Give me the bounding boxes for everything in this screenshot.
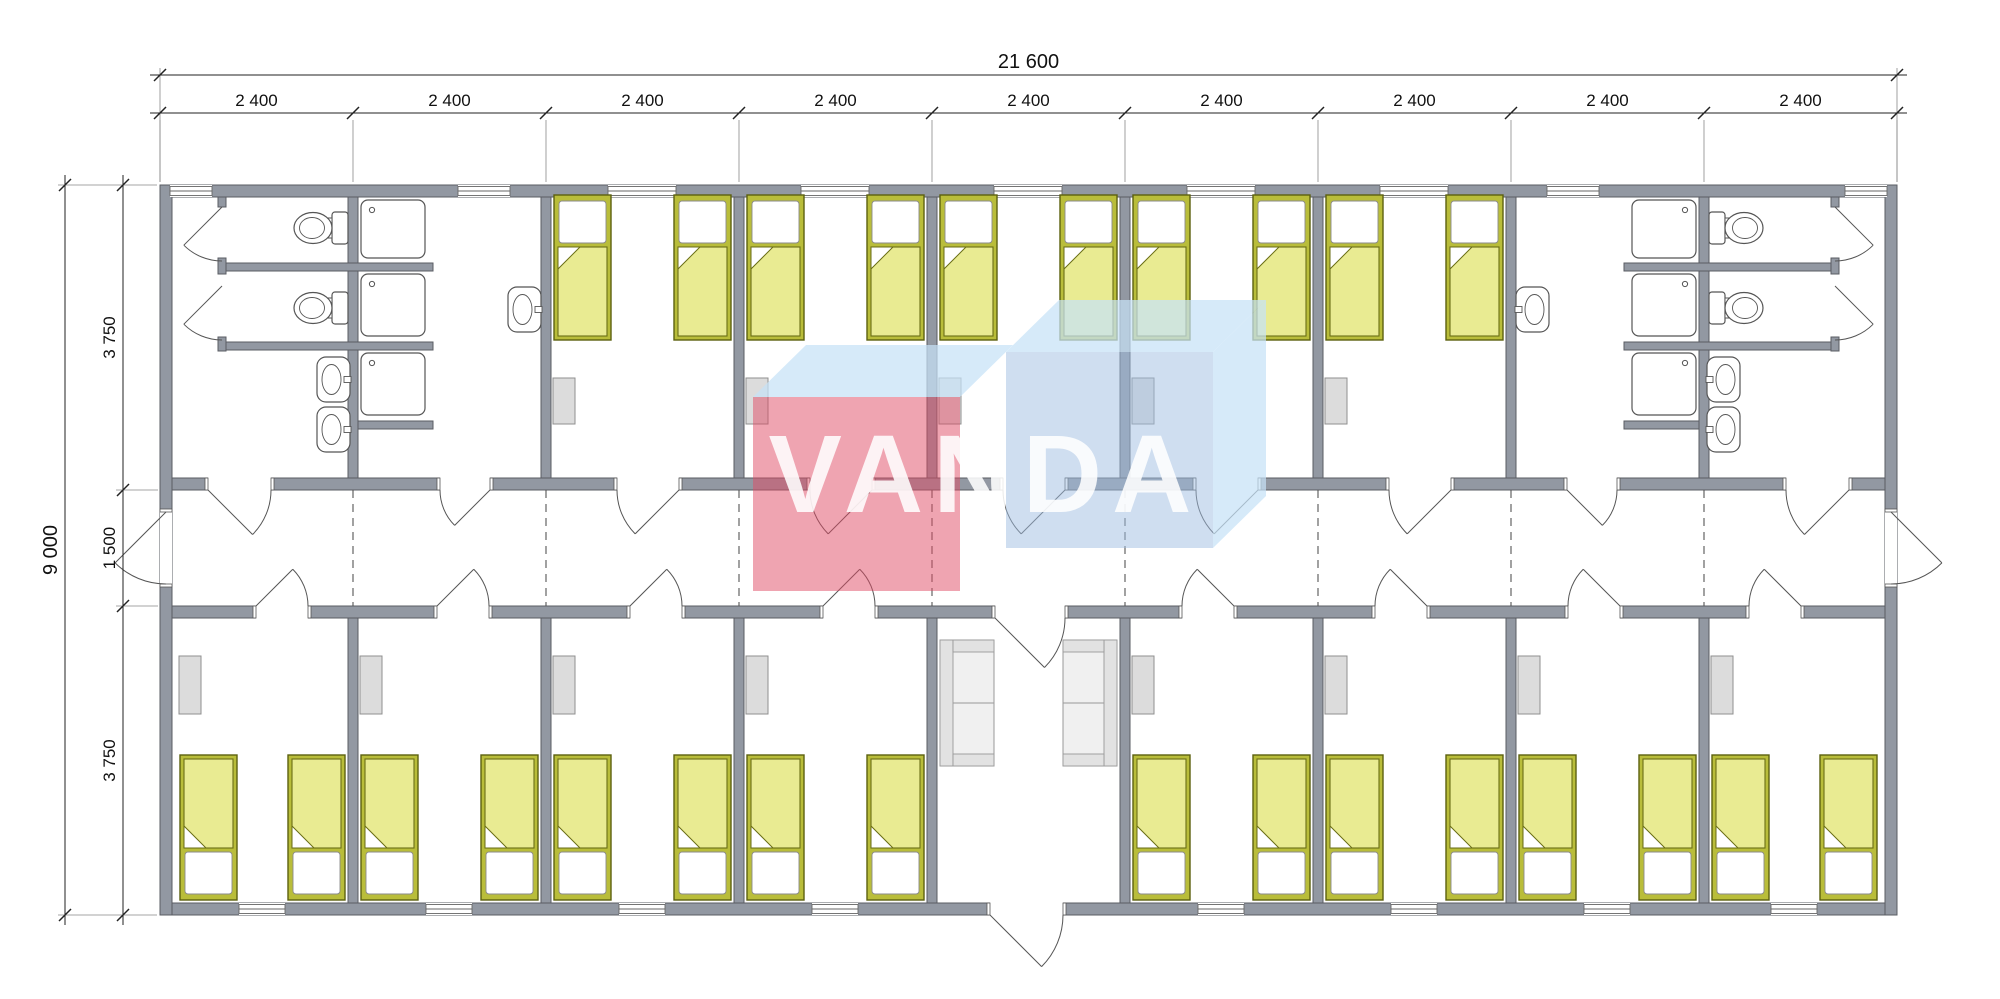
dimension-label-module: 2 400: [1779, 91, 1822, 110]
floor-plan-svg: 21 6002 4002 4002 4002 4002 4002 4002 40…: [0, 0, 2000, 999]
door-opening: [990, 903, 1063, 916]
door-jamb: [1801, 606, 1804, 618]
door-swing-arc: [293, 569, 308, 606]
door-opening: [617, 478, 679, 491]
door-jamb: [308, 606, 311, 618]
sofa-armrest: [1063, 640, 1104, 652]
dimension-label-module: 2 400: [814, 91, 857, 110]
partition-wall: [1699, 618, 1709, 903]
partition-wall: [541, 618, 551, 903]
door-jamb: [1179, 606, 1182, 618]
dimension-label-module: 2 400: [235, 91, 278, 110]
door-swing-arc: [1568, 569, 1583, 606]
door-leaf: [1583, 569, 1620, 606]
partition-wall: [541, 197, 551, 478]
partition-wall: [927, 618, 937, 903]
bed-pillow: [293, 852, 340, 894]
shower-tray: [1632, 274, 1696, 336]
door-jamb: [489, 606, 492, 618]
partition-wall: [734, 618, 744, 903]
partition-wall: [1313, 197, 1323, 478]
stall-door-arc: [1835, 324, 1873, 340]
door-jamb: [1620, 606, 1623, 618]
dimension-label-vertical: 3 750: [100, 316, 119, 359]
door-opening: [160, 512, 172, 584]
sofa-armrest: [953, 640, 994, 652]
door-leaf: [1197, 569, 1234, 606]
stub-wall: [218, 258, 226, 274]
stub-wall: [1831, 197, 1839, 207]
toilet-cistern: [332, 292, 348, 324]
watermark-text: VANDA: [769, 413, 1202, 536]
door-jamb: [1617, 478, 1620, 490]
door-jamb: [614, 478, 617, 490]
bed-pillow: [559, 201, 606, 243]
door-jamb: [992, 606, 995, 618]
bed-pillow: [872, 852, 919, 894]
bed-pillow: [486, 852, 533, 894]
stub-wall: [218, 337, 226, 351]
basin-tap: [1706, 377, 1713, 383]
door-jamb: [1565, 606, 1568, 618]
door-jamb: [1885, 584, 1897, 587]
dimension-label-module: 2 400: [621, 91, 664, 110]
door-swing-arc: [667, 569, 682, 606]
stub-wall: [1831, 337, 1839, 351]
wardrobe: [179, 656, 201, 714]
door-opening: [1389, 478, 1451, 491]
stall-door-arc: [1835, 245, 1873, 261]
wardrobe: [553, 656, 575, 714]
door-swing-arc: [1389, 490, 1407, 534]
dimension-label-module: 2 400: [1586, 91, 1629, 110]
door-jamb: [434, 606, 437, 618]
door-swing-arc: [1044, 618, 1065, 667]
door-swing-arc: [253, 490, 271, 535]
door-leaf: [1567, 490, 1602, 525]
bed-pillow: [1138, 852, 1185, 894]
dimension-label-module: 2 400: [1393, 91, 1436, 110]
door-swing-arc: [1891, 563, 1942, 584]
watermark-cube-top: [753, 345, 1013, 397]
bed-pillow: [945, 201, 992, 243]
dimension-label-module: 2 400: [1200, 91, 1243, 110]
door-jamb: [253, 606, 256, 618]
door-opening: [1885, 512, 1897, 584]
stall-door-leaf: [184, 207, 222, 245]
bed-pillow: [1258, 852, 1305, 894]
door-leaf: [990, 915, 1042, 967]
partition-wall: [1506, 197, 1516, 478]
door-jamb: [1885, 509, 1897, 512]
sofa-back: [1104, 640, 1117, 766]
door-opening: [1786, 478, 1849, 491]
door-leaf: [437, 569, 474, 606]
door-leaf: [995, 618, 1044, 667]
door-jamb: [1849, 478, 1852, 490]
wardrobe: [1518, 656, 1540, 714]
toilet-cistern: [332, 212, 348, 244]
bed-pillow: [185, 852, 232, 894]
door-leaf: [1390, 569, 1427, 606]
partition-wall: [1120, 618, 1130, 903]
door-opening: [630, 606, 682, 619]
door-opening: [1375, 606, 1427, 619]
door-jamb: [1063, 903, 1066, 915]
door-jamb: [1564, 478, 1567, 490]
sofa-back: [940, 640, 953, 766]
door-jamb: [271, 478, 274, 490]
partition-wall: [348, 618, 358, 903]
stall-door-leaf: [184, 286, 222, 324]
partition-wall: [1313, 618, 1323, 903]
bed-pillow: [872, 201, 919, 243]
door-leaf: [1407, 490, 1451, 534]
dimension-label-module: 2 400: [428, 91, 471, 110]
shower-tray: [1632, 200, 1696, 258]
dimension-label-total-width: 21 600: [998, 51, 1059, 73]
door-jamb: [627, 606, 630, 618]
stub-wall: [358, 421, 433, 429]
bed-pillow: [1331, 852, 1378, 894]
door-jamb: [1372, 606, 1375, 618]
door-leaf: [256, 569, 293, 606]
door-jamb: [679, 478, 682, 490]
door-jamb: [820, 606, 823, 618]
bed-pillow: [679, 852, 726, 894]
door-opening: [995, 606, 1065, 619]
shower-tray: [361, 274, 425, 336]
bed-pillow: [752, 201, 799, 243]
bed-pillow: [679, 201, 726, 243]
dimension-label-total-height: 9 000: [40, 525, 62, 575]
bed-pillow: [1331, 201, 1378, 243]
door-opening: [1568, 606, 1620, 619]
dimension-label-vertical: 1 500: [100, 527, 119, 570]
bed-pillow: [1451, 852, 1498, 894]
door-jamb: [875, 606, 878, 618]
door-opening: [437, 606, 489, 619]
stall-door-arc: [184, 324, 222, 340]
shower-tray: [1632, 353, 1696, 415]
toilet-cistern: [1709, 292, 1725, 324]
door-leaf: [1891, 512, 1942, 563]
door-leaf: [1764, 569, 1801, 606]
door-jamb: [1451, 478, 1454, 490]
bed-pillow: [559, 852, 606, 894]
door-jamb: [1746, 606, 1749, 618]
wardrobe: [746, 656, 768, 714]
wardrobe: [1711, 656, 1733, 714]
bed-pillow: [1258, 201, 1305, 243]
door-jamb: [205, 478, 208, 490]
bed-pillow: [366, 852, 413, 894]
stall-door-arc: [184, 245, 222, 261]
shower-tray: [361, 353, 425, 415]
door-jamb: [987, 903, 990, 915]
door-leaf: [455, 490, 490, 525]
bed-pillow: [1065, 201, 1112, 243]
door-opening: [256, 606, 308, 619]
door-swing-arc: [440, 490, 455, 525]
bed-pillow: [1451, 201, 1498, 243]
door-swing-arc: [1375, 569, 1390, 606]
wardrobe: [1325, 656, 1347, 714]
door-swing-arc: [474, 569, 489, 606]
partition-wall: [734, 197, 744, 478]
stub-wall: [222, 342, 433, 350]
floor-plan-page: 21 6002 4002 4002 4002 4002 4002 4002 40…: [0, 0, 2000, 999]
door-jamb: [490, 478, 493, 490]
door-leaf: [635, 490, 679, 534]
stub-wall: [1831, 258, 1839, 274]
wardrobe: [360, 656, 382, 714]
door-jamb: [1234, 606, 1237, 618]
basin-tap: [344, 427, 351, 433]
bed-pillow: [1138, 201, 1185, 243]
door-leaf: [630, 569, 667, 606]
door-jamb: [437, 478, 440, 490]
basin-tap: [1515, 307, 1522, 313]
door-jamb: [1783, 478, 1786, 490]
door-swing-arc: [1749, 569, 1764, 606]
bed-pillow: [1524, 852, 1571, 894]
basin-tap: [1706, 427, 1713, 433]
stub-wall: [1624, 263, 1835, 271]
door-leaf: [1804, 490, 1849, 535]
dimension-label-module: 2 400: [1007, 91, 1050, 110]
door-jamb: [160, 584, 172, 587]
door-opening: [1567, 478, 1617, 491]
sofa-armrest: [1063, 754, 1104, 766]
partition-wall: [1506, 618, 1516, 903]
bed-pillow: [1717, 852, 1764, 894]
bed-pillow: [1825, 852, 1872, 894]
basin-tap: [535, 307, 542, 313]
stall-door-leaf: [1835, 286, 1873, 324]
wardrobe: [1132, 656, 1154, 714]
stub-wall: [1624, 342, 1835, 350]
door-jamb: [160, 509, 172, 512]
door-swing-arc: [1602, 490, 1617, 525]
door-jamb: [682, 606, 685, 618]
toilet-cistern: [1709, 212, 1725, 244]
door-swing-arc: [1042, 915, 1063, 967]
door-opening: [1182, 606, 1234, 619]
door-opening: [440, 478, 490, 491]
door-jamb: [1065, 606, 1068, 618]
door-jamb: [1427, 606, 1430, 618]
wardrobe: [1325, 378, 1347, 424]
door-jamb: [1386, 478, 1389, 490]
door-swing-arc: [617, 490, 635, 534]
bed-pillow: [1644, 852, 1691, 894]
wardrobe: [553, 378, 575, 424]
door-swing-arc: [1182, 569, 1197, 606]
basin-tap: [344, 377, 351, 383]
stall-door-leaf: [1835, 207, 1873, 245]
stub-wall: [1624, 421, 1699, 429]
dimension-label-vertical: 3 750: [100, 739, 119, 782]
bed-pillow: [752, 852, 799, 894]
door-opening: [823, 606, 875, 619]
door-leaf: [208, 490, 253, 535]
door-opening: [1749, 606, 1801, 619]
door-swing-arc: [1786, 490, 1804, 535]
stub-wall: [218, 197, 226, 207]
door-opening: [208, 478, 271, 491]
stub-wall: [222, 263, 433, 271]
shower-tray: [361, 200, 425, 258]
sofa-armrest: [953, 754, 994, 766]
